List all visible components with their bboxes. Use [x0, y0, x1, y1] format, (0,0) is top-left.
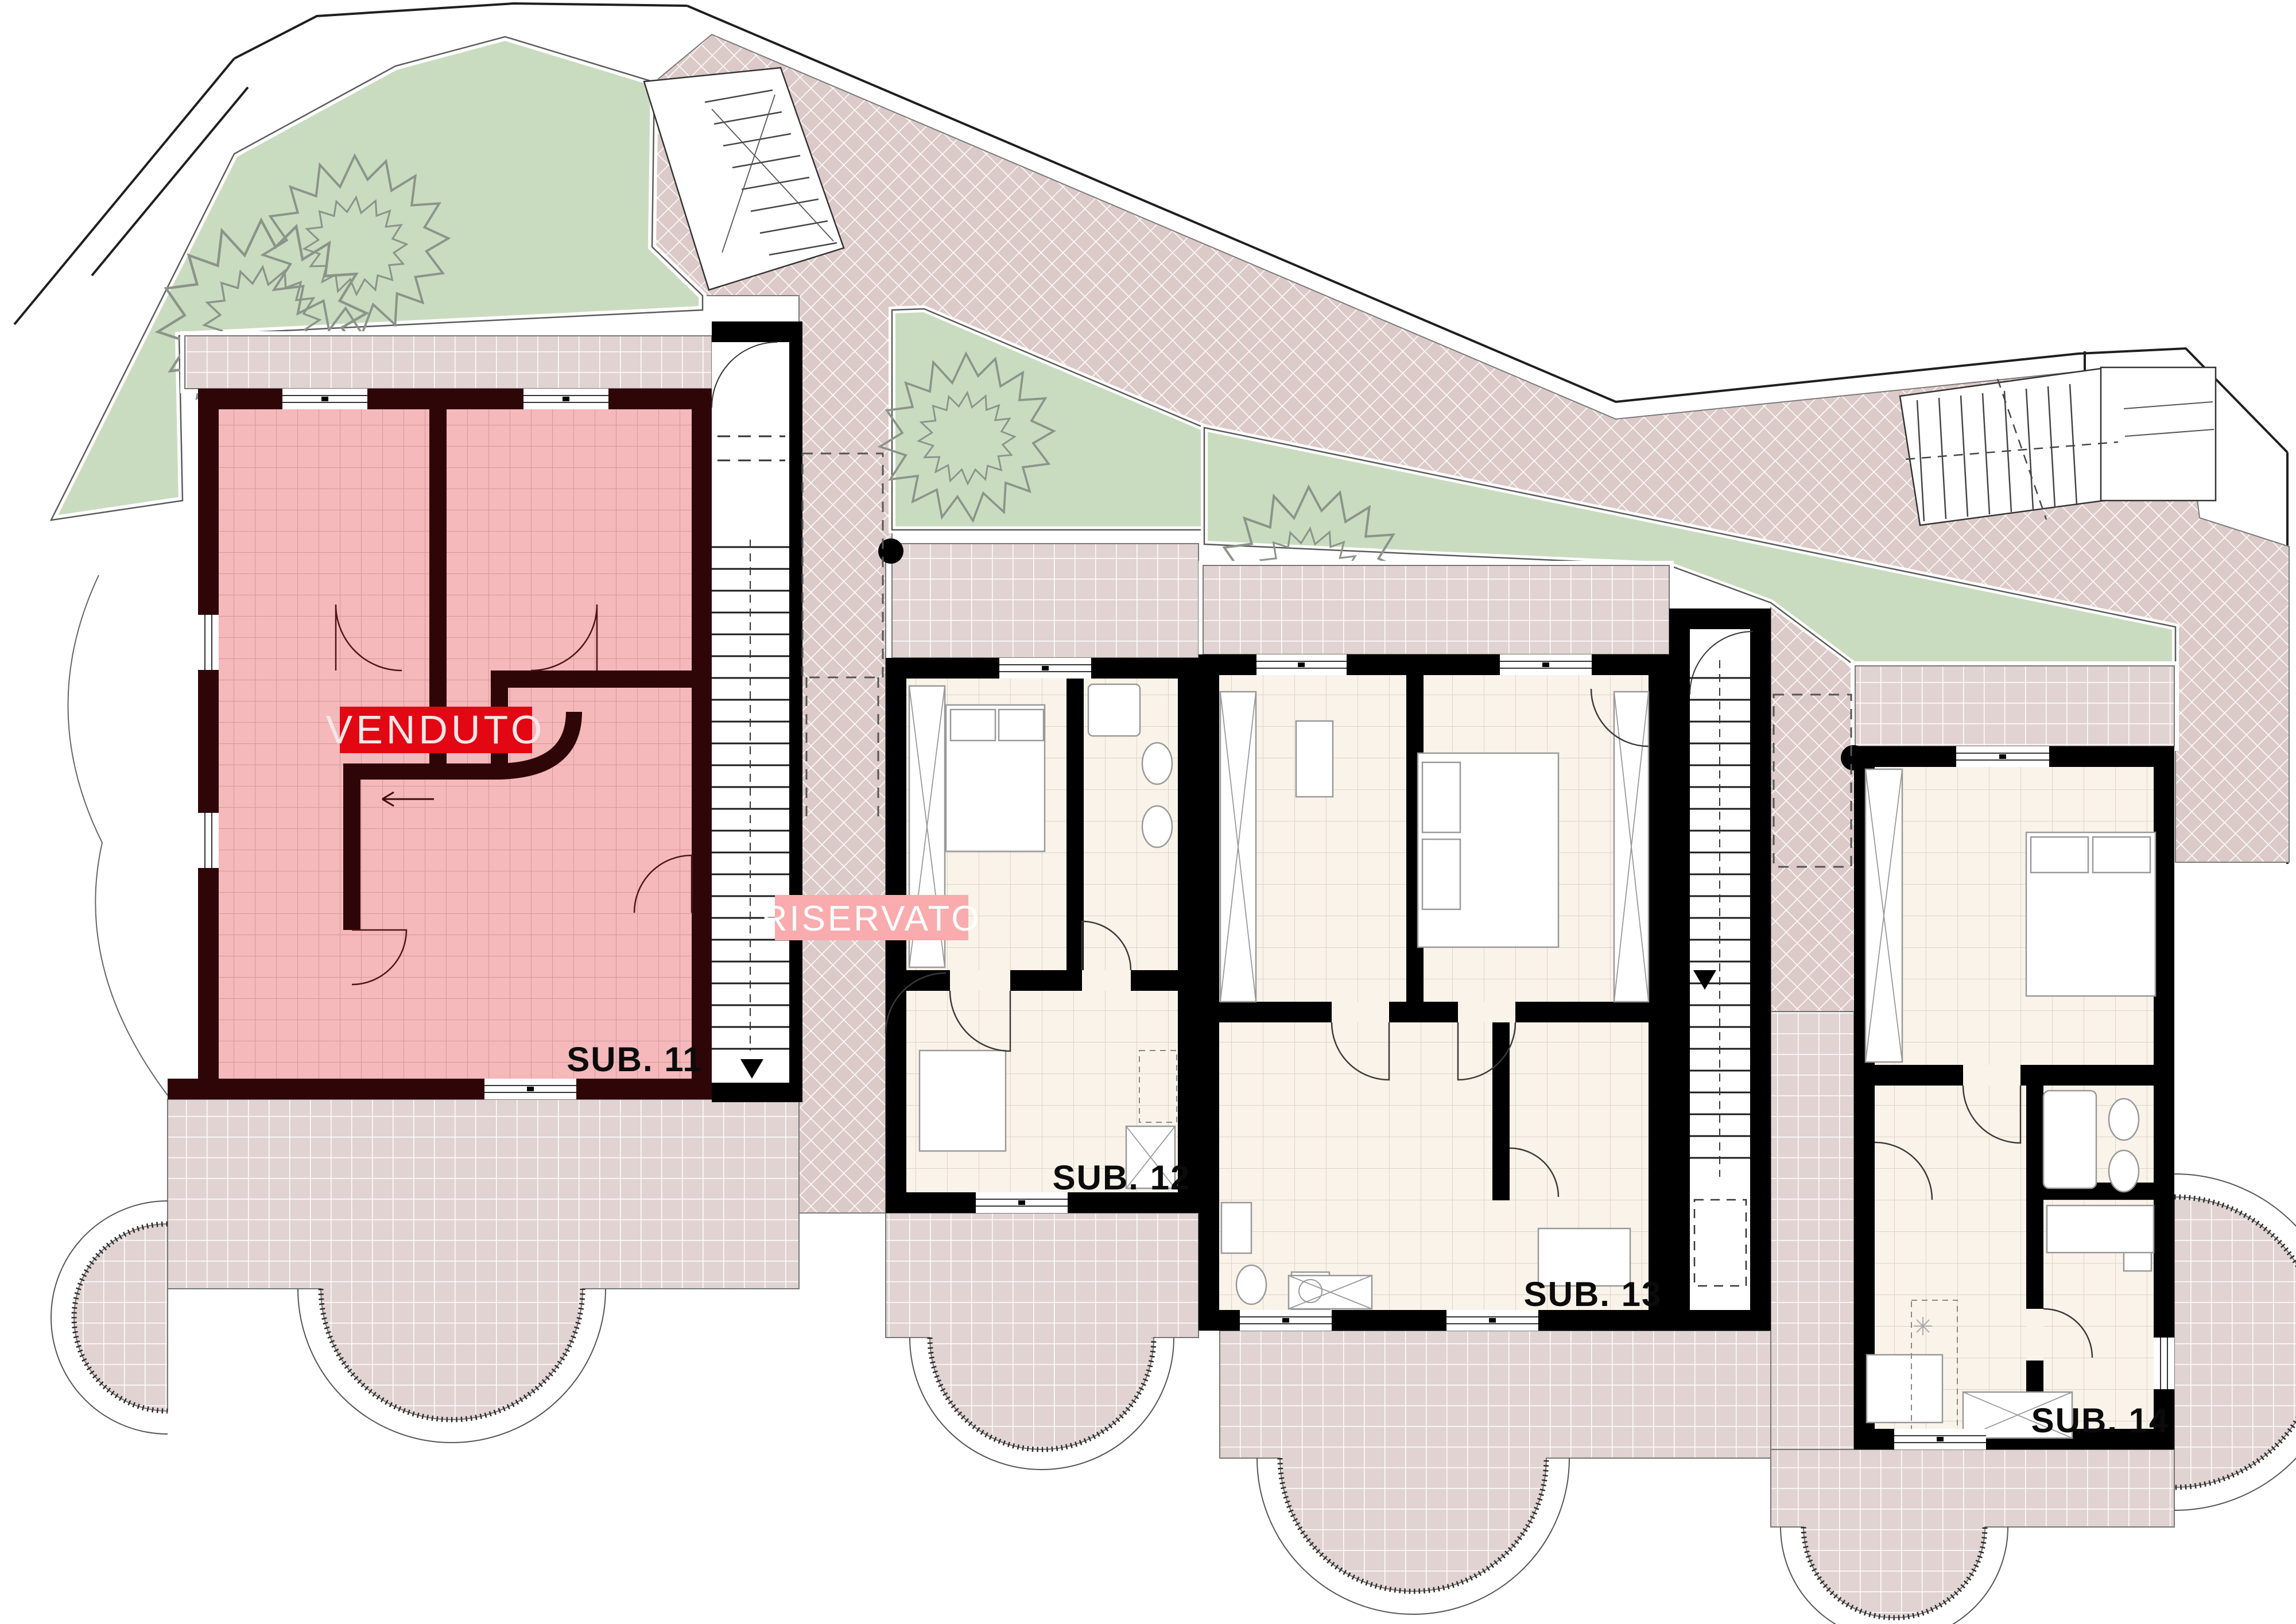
reserved-badge: RISERVATO — [762, 895, 982, 940]
terrace-above-sub-11 — [180, 331, 716, 393]
sold-badge: VENDUTO — [326, 707, 546, 753]
stairwell-sub-13 — [1669, 608, 1771, 1331]
unit-sub-14[interactable] — [1854, 746, 2174, 1449]
stairwell-sub-11 — [712, 321, 802, 1102]
floor-plan-page: VENDUTO RISERVATO SUB. 11 SUB. 12 SUB. 1… — [0, 0, 2296, 1624]
unit-label-sub-13: SUB. 13 — [1524, 1275, 1662, 1313]
terrace-above-sub-14 — [1851, 661, 2179, 751]
reserved-badge-label: RISERVATO — [762, 899, 982, 939]
unit-label-sub-11: SUB. 11 — [567, 1040, 703, 1079]
side-path-sub-14 — [1771, 1011, 1854, 1449]
terrace-above-sub-12 — [887, 539, 1203, 662]
unit-label-sub-12: SUB. 12 — [1053, 1158, 1191, 1197]
unit-label-sub-14: SUB. 14 — [2031, 1401, 2170, 1440]
terrace-above-sub-13 — [1199, 561, 1674, 659]
unit-sub-13[interactable] — [1199, 654, 1669, 1331]
sold-badge-label: VENDUTO — [326, 707, 546, 752]
floor-plan-canvas: VENDUTO RISERVATO SUB. 11 SUB. 12 SUB. 1… — [0, 0, 2296, 1624]
upper-floor-outline — [68, 575, 168, 1095]
